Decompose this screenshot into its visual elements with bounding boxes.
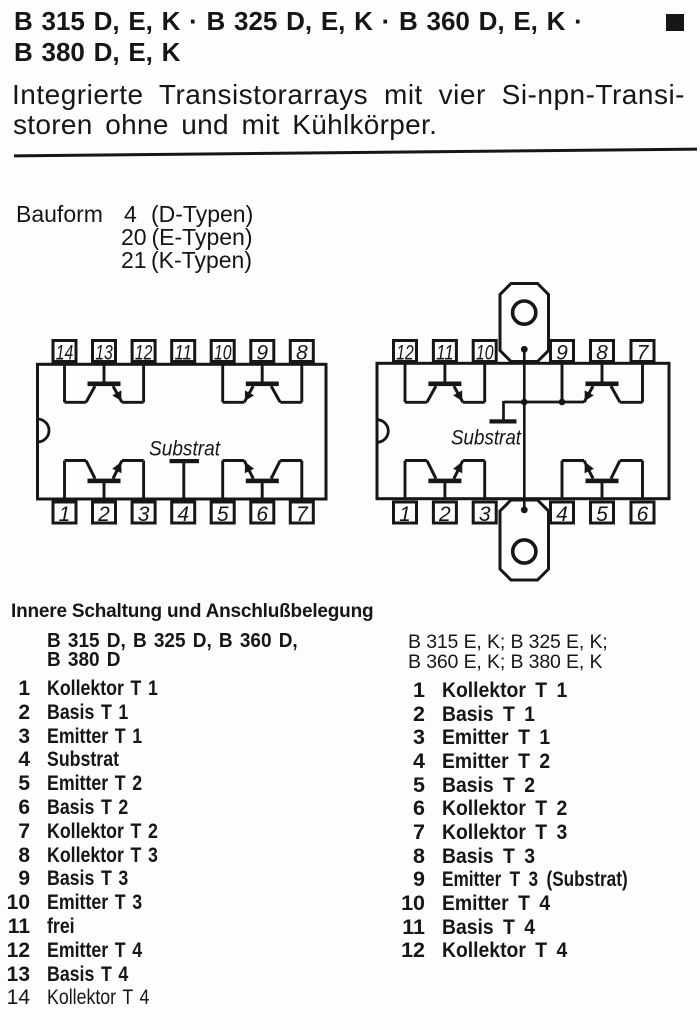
- svg-text:6: 6: [637, 503, 649, 526]
- svg-text:2: 2: [97, 503, 110, 526]
- svg-text:10: 10: [476, 342, 494, 365]
- svg-text:Substrat: Substrat: [451, 426, 522, 450]
- svg-text:Substrat: Substrat: [149, 437, 221, 461]
- svg-text:2: 2: [438, 503, 451, 526]
- svg-text:6: 6: [256, 503, 268, 526]
- svg-text:7: 7: [637, 342, 650, 365]
- svg-text:10: 10: [214, 342, 232, 365]
- svg-text:12: 12: [135, 342, 153, 365]
- svg-text:3: 3: [479, 503, 491, 526]
- svg-text:1: 1: [399, 503, 411, 526]
- svg-text:13: 13: [95, 342, 113, 365]
- svg-text:5: 5: [217, 503, 229, 526]
- svg-text:4: 4: [556, 503, 568, 526]
- svg-text:8: 8: [596, 342, 608, 365]
- svg-text:12: 12: [396, 342, 414, 365]
- svg-text:1: 1: [59, 503, 71, 526]
- svg-text:9: 9: [556, 342, 568, 365]
- svg-text:7: 7: [296, 503, 309, 526]
- svg-text:3: 3: [138, 503, 150, 526]
- svg-text:11: 11: [174, 342, 192, 365]
- svg-text:11: 11: [436, 342, 454, 365]
- svg-text:5: 5: [596, 503, 608, 526]
- svg-text:8: 8: [296, 342, 308, 365]
- svg-text:9: 9: [256, 342, 268, 365]
- svg-text:14: 14: [56, 342, 74, 365]
- svg-text:4: 4: [177, 503, 189, 526]
